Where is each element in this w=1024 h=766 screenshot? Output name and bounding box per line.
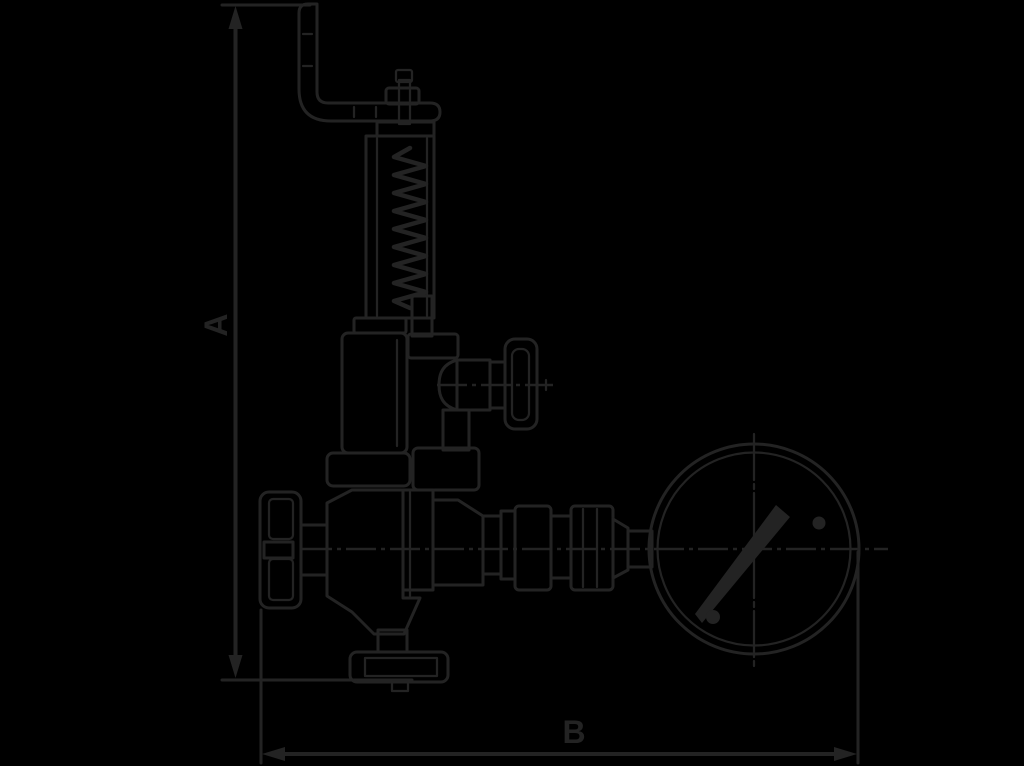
handwheel-spoke-lower xyxy=(269,559,293,600)
outlet-column xyxy=(403,490,433,590)
adjusting-screw xyxy=(386,70,419,124)
gauge-pin-dot xyxy=(813,517,826,530)
outlet-pipe xyxy=(403,490,652,590)
valve-drawing: A B xyxy=(0,0,1024,766)
dim-a-arrow-up-icon xyxy=(229,6,243,29)
bonnet xyxy=(327,333,410,486)
gauge-pin-dot xyxy=(706,610,720,624)
technical-drawing-canvas: A B xyxy=(0,0,1024,766)
outlet-block xyxy=(433,500,483,585)
dim-b-arrow-left-icon xyxy=(262,747,285,761)
pilot-stem xyxy=(412,296,432,336)
pilot-column xyxy=(408,296,546,490)
dim-b-arrow-right-icon xyxy=(834,747,857,761)
spring-housing xyxy=(354,122,434,333)
bonnet-flange xyxy=(327,453,410,486)
pipe-ring-3 xyxy=(551,516,571,578)
pipe-ring-2 xyxy=(501,511,515,579)
pipe-ring-1 xyxy=(483,516,501,574)
dim-a-label: A xyxy=(198,313,234,336)
handwheel-spoke-upper xyxy=(269,499,293,539)
handwheel-hub xyxy=(264,542,293,558)
housing-base-plate xyxy=(354,318,406,333)
spring-coil xyxy=(394,148,426,308)
pilot-flange xyxy=(413,448,479,490)
body-facet-line xyxy=(327,490,352,503)
pressure-gauge xyxy=(649,434,859,667)
handwheel-rim xyxy=(260,492,301,608)
dim-a-arrow-down-icon xyxy=(229,655,243,678)
axis-centerlines xyxy=(302,385,888,549)
pilot-head xyxy=(408,334,458,358)
dimension-a: A xyxy=(198,5,412,680)
valve-body-outline xyxy=(327,490,420,634)
dim-b-label: B xyxy=(562,714,585,750)
gauge-needle xyxy=(695,505,790,623)
bottom-flange-inner xyxy=(365,658,437,676)
pilot-lower-stem xyxy=(443,410,469,450)
